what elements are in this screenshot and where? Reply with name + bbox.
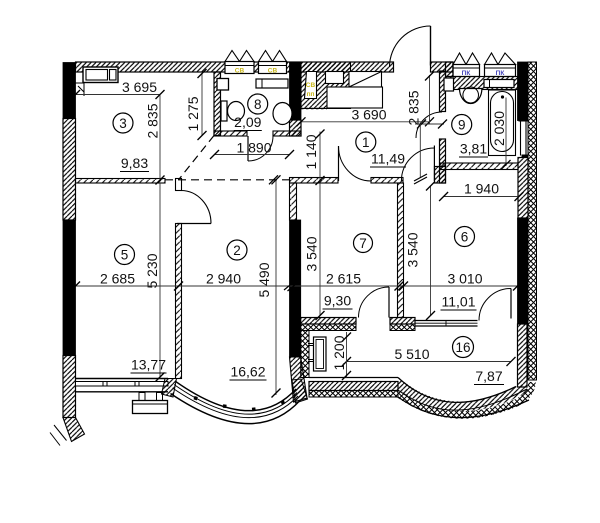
- svg-text:11,49: 11,49: [371, 151, 405, 167]
- svg-text:9: 9: [458, 118, 466, 133]
- svg-text:2 835: 2 835: [406, 90, 422, 125]
- svg-text:3 540: 3 540: [304, 236, 320, 271]
- svg-text:7,87: 7,87: [475, 368, 502, 384]
- svg-text:2: 2: [233, 243, 241, 258]
- svg-text:1 275: 1 275: [185, 96, 201, 131]
- svg-text:2 940: 2 940: [206, 271, 241, 287]
- svg-text:ПК: ПК: [496, 70, 505, 77]
- svg-text:9,83: 9,83: [121, 155, 148, 171]
- svg-text:пп: пп: [307, 91, 315, 98]
- svg-text:16,62: 16,62: [230, 364, 265, 380]
- svg-text:3 695: 3 695: [122, 79, 157, 95]
- svg-text:1 140: 1 140: [303, 134, 319, 169]
- svg-text:2 835: 2 835: [145, 103, 161, 138]
- svg-text:5 230: 5 230: [144, 253, 160, 288]
- svg-text:3 690: 3 690: [351, 107, 386, 123]
- svg-text:7: 7: [359, 236, 367, 251]
- svg-text:1 200: 1 200: [331, 335, 347, 370]
- svg-text:1 890: 1 890: [236, 140, 271, 156]
- svg-text:3 010: 3 010: [447, 271, 482, 287]
- svg-text:1 940: 1 940: [464, 181, 499, 197]
- svg-text:СВ: СВ: [268, 68, 278, 75]
- svg-text:3 540: 3 540: [405, 232, 421, 267]
- svg-text:2 615: 2 615: [326, 271, 361, 287]
- svg-text:СВ: СВ: [306, 82, 316, 89]
- svg-text:ПК: ПК: [462, 70, 471, 77]
- svg-text:16: 16: [455, 340, 470, 355]
- svg-text:13,77: 13,77: [131, 357, 166, 373]
- svg-text:СВ: СВ: [235, 68, 245, 75]
- svg-text:3,81: 3,81: [460, 141, 487, 157]
- svg-text:6: 6: [461, 230, 469, 245]
- svg-text:5: 5: [121, 248, 129, 263]
- svg-text:5 490: 5 490: [256, 262, 272, 297]
- svg-text:8: 8: [254, 97, 262, 112]
- svg-text:2 030: 2 030: [491, 111, 507, 146]
- svg-text:2,09: 2,09: [234, 114, 261, 130]
- svg-text:2 685: 2 685: [100, 271, 135, 287]
- svg-text:9,30: 9,30: [324, 293, 351, 309]
- svg-text:11,01: 11,01: [442, 294, 476, 310]
- svg-text:5 510: 5 510: [394, 346, 429, 362]
- svg-text:3: 3: [119, 116, 127, 131]
- svg-text:1: 1: [362, 135, 370, 150]
